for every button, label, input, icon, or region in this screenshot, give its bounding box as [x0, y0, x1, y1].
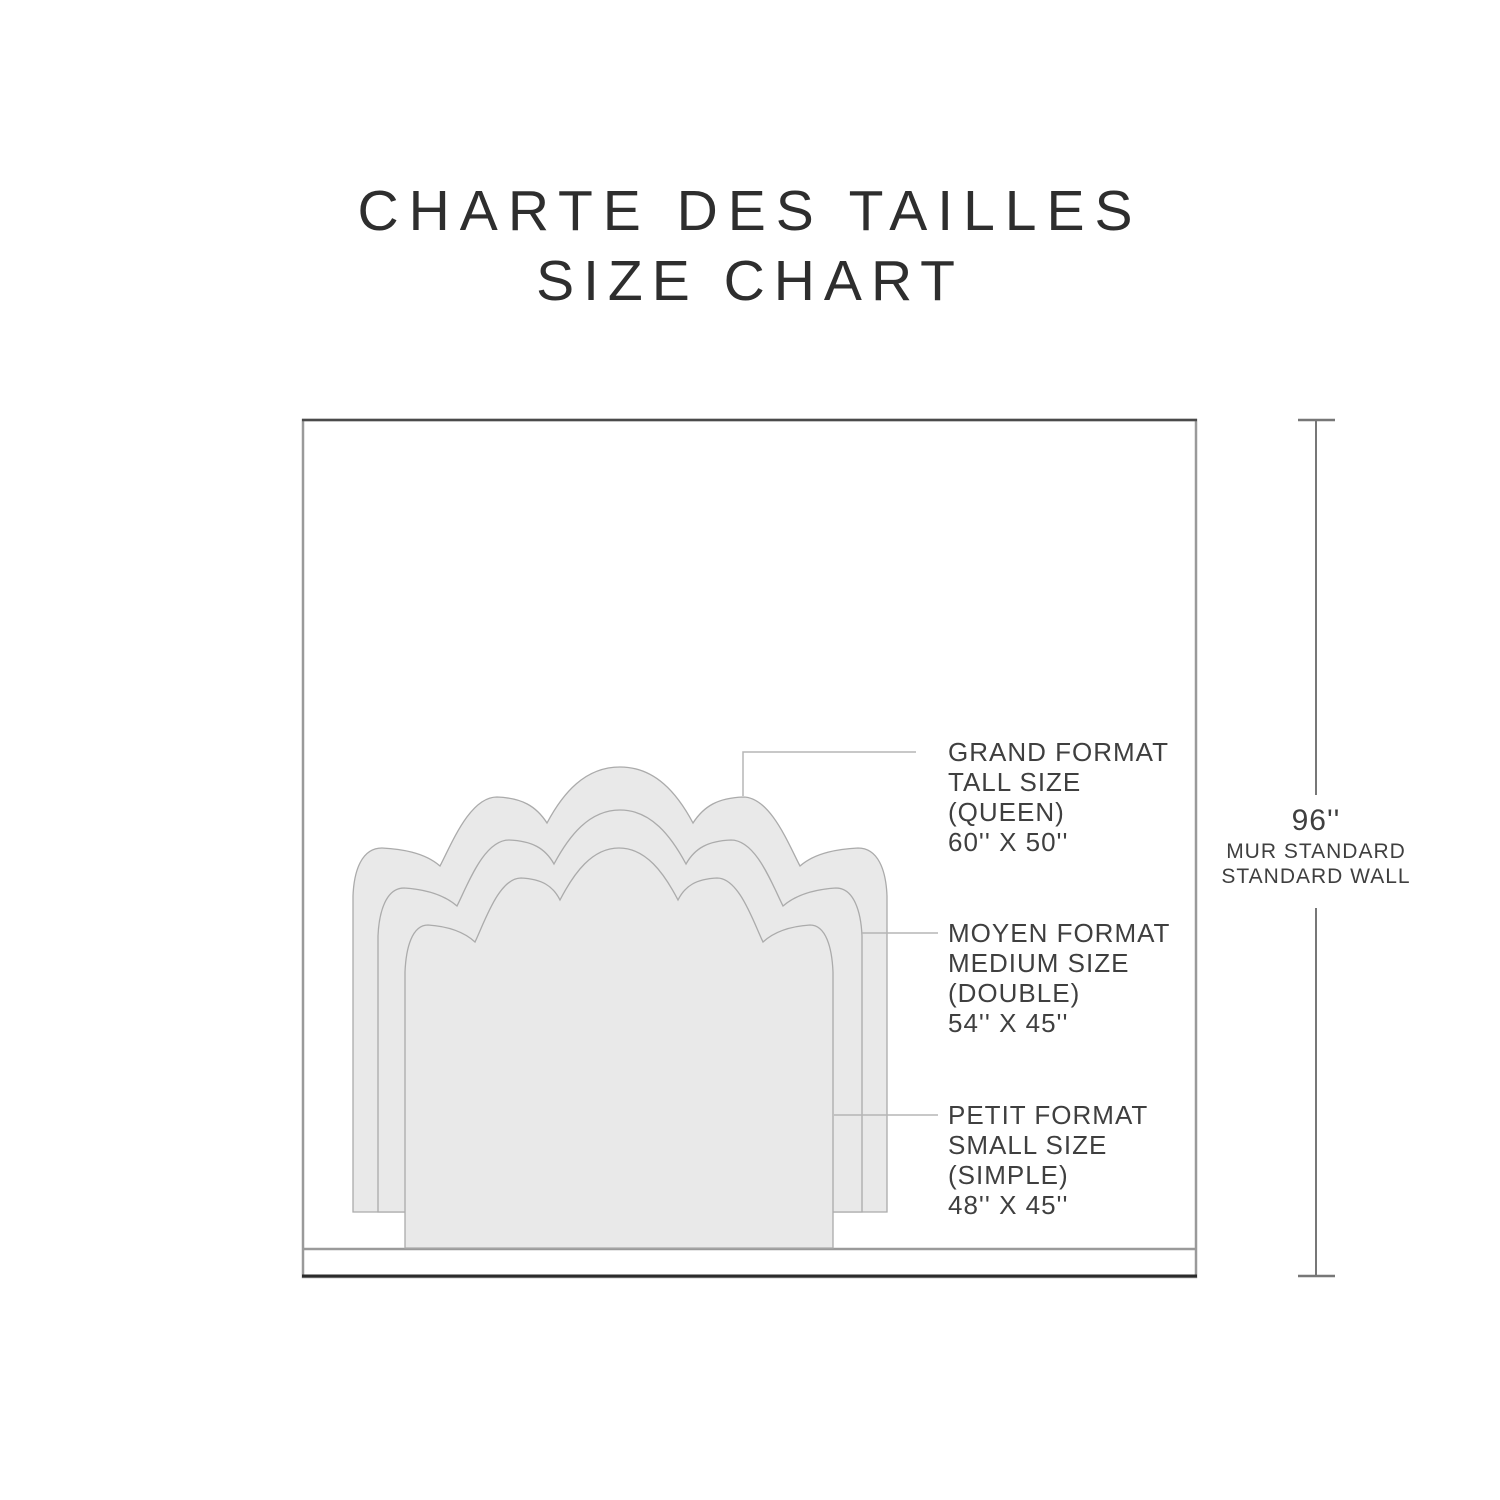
size-label-medium-dimensions: 54'' X 45'' [948, 1008, 1248, 1038]
size-label-small: PETIT FORMAT SMALL SIZE (SIMPLE) 48'' X … [948, 1100, 1248, 1220]
size-label-medium-line3: (DOUBLE) [948, 978, 1248, 1008]
size-label-small-line2: SMALL SIZE [948, 1130, 1248, 1160]
page-title-french: CHARTE DES TAILLES [0, 176, 1500, 246]
size-label-small-line1: PETIT FORMAT [948, 1100, 1248, 1130]
size-label-small-dimensions: 48'' X 45'' [948, 1190, 1248, 1220]
page-title: CHARTE DES TAILLES SIZE CHART [0, 176, 1500, 316]
leader-line-tall [743, 752, 916, 796]
size-label-small-line3: (SIMPLE) [948, 1160, 1248, 1190]
page-title-english: SIZE CHART [0, 246, 1500, 316]
size-label-tall-line1: GRAND FORMAT [948, 737, 1248, 767]
wall-height-value: 96'' [1196, 803, 1436, 839]
size-label-medium-line2: MEDIUM SIZE [948, 948, 1248, 978]
size-label-medium: MOYEN FORMAT MEDIUM SIZE (DOUBLE) 54'' X… [948, 918, 1248, 1038]
wall-label-french: MUR STANDARD [1196, 839, 1436, 864]
size-chart-page: CHARTE DES TAILLES SIZE CHART GRAND FORM… [0, 0, 1500, 1500]
size-label-medium-line1: MOYEN FORMAT [948, 918, 1248, 948]
wall-measure-label: 96'' MUR STANDARD STANDARD WALL [1196, 803, 1436, 889]
wall-label-english: STANDARD WALL [1196, 864, 1436, 889]
size-label-tall-line2: TALL SIZE [948, 767, 1248, 797]
